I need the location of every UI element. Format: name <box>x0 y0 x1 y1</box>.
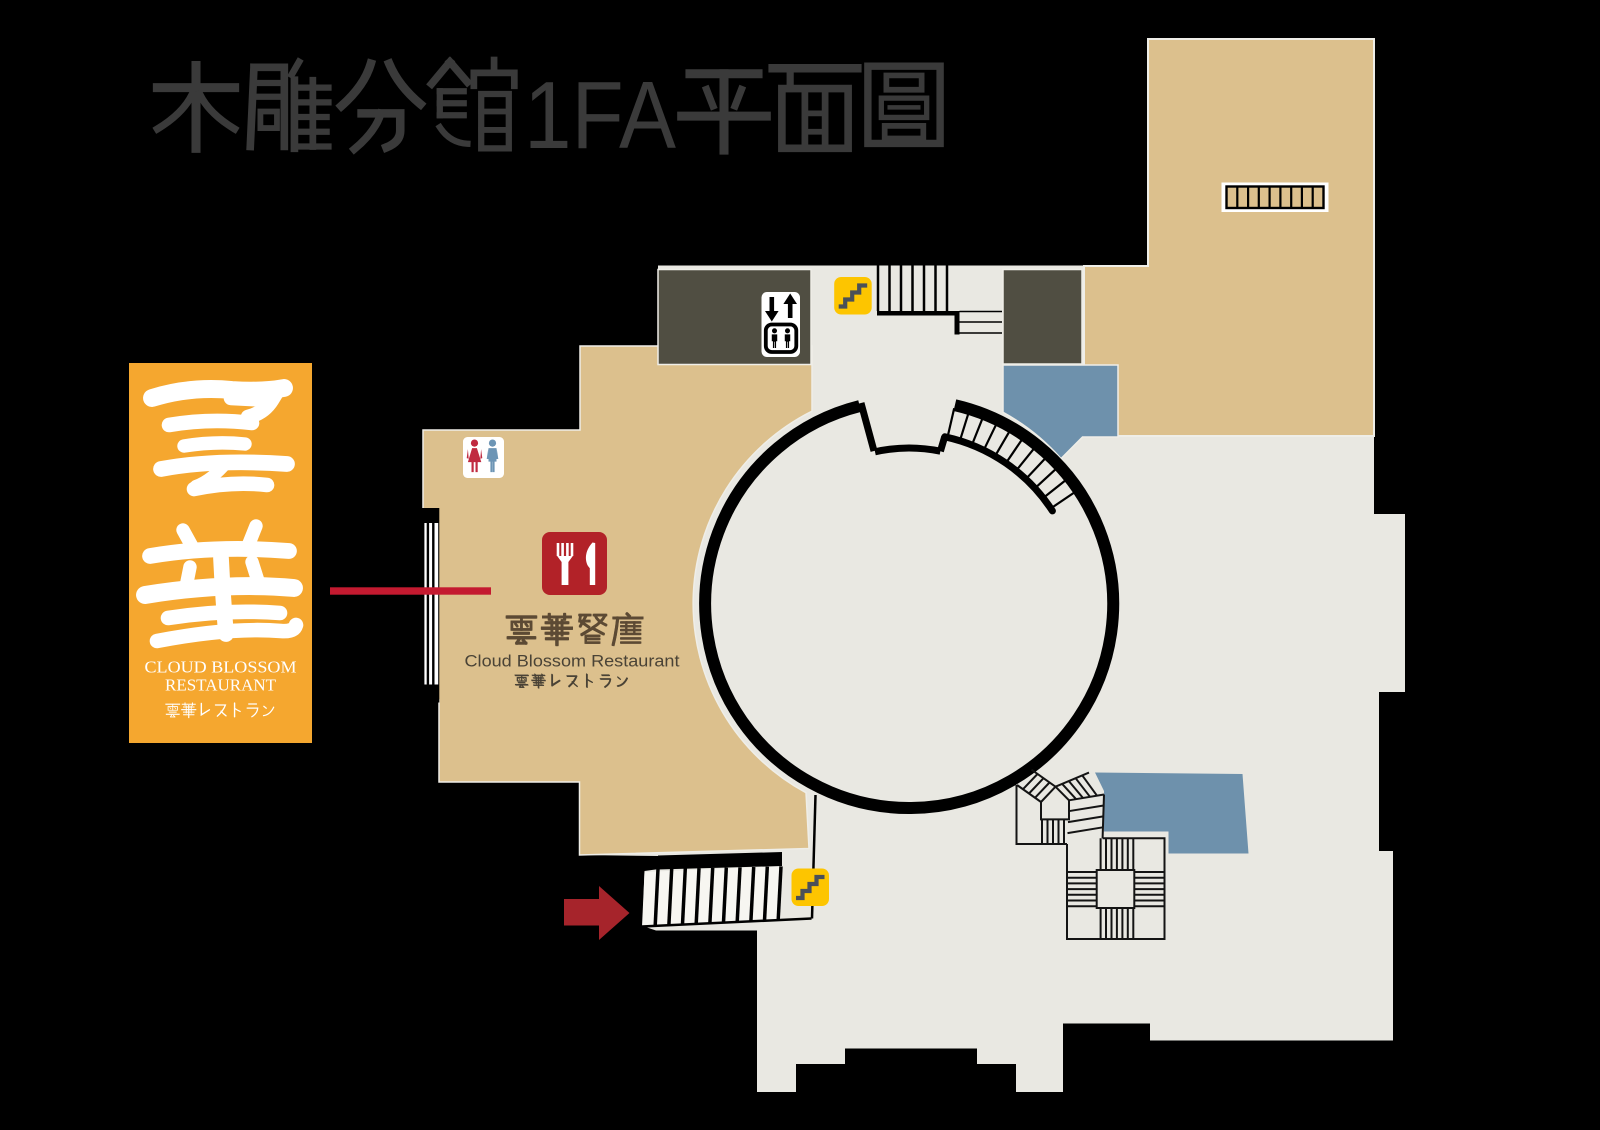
svg-text:CLOUD BLOSSOM: CLOUD BLOSSOM <box>145 658 297 677</box>
svg-text:RESTAURANT: RESTAURANT <box>165 676 277 695</box>
svg-text:1FA: 1FA <box>524 62 676 169</box>
svg-text:Cloud Blossom Restaurant: Cloud Blossom Restaurant <box>465 653 680 671</box>
